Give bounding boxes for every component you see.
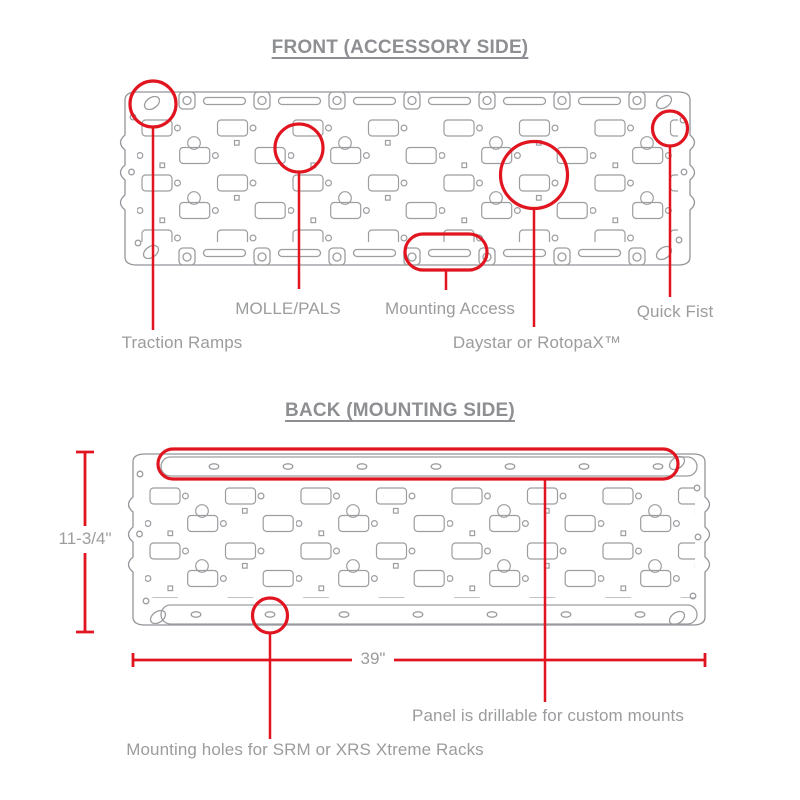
back-molle-grid (145, 482, 695, 598)
front-panel-drawing (121, 92, 695, 265)
panel-width-dimension: 39" (361, 649, 386, 669)
front-title: FRONT (ACCESSORY SIDE) (0, 37, 800, 59)
quick-fist-label: Quick Fist (637, 302, 714, 322)
front-molle-grid (137, 114, 678, 242)
traction-ramps-label: Traction Ramps (122, 333, 243, 353)
diagram-page: FRONT (ACCESSORY SIDE) BACK (MOUNTING SI… (0, 0, 800, 800)
srm-holes-label: Mounting holes for SRM or XRS Xtreme Rac… (126, 740, 484, 760)
back-bottom-rail (161, 605, 697, 624)
front-top-rail (179, 92, 645, 109)
mounting-access-label: Mounting Access (385, 299, 515, 319)
srm-holes-callout-circle (253, 598, 288, 633)
front-bottom-rail (179, 248, 645, 265)
panel-height-dimension: 11-3/4" (59, 529, 112, 549)
drillable-label: Panel is drillable for custom mounts (412, 706, 684, 726)
back-top-rail (161, 457, 697, 476)
daystar-rotopax-label: Daystar or RotopaX™ (453, 333, 621, 353)
back-title: BACK (MOUNTING SIDE) (0, 400, 800, 422)
molle-pals-label: MOLLE/PALS (235, 299, 341, 319)
width-dimension-line (133, 653, 705, 667)
